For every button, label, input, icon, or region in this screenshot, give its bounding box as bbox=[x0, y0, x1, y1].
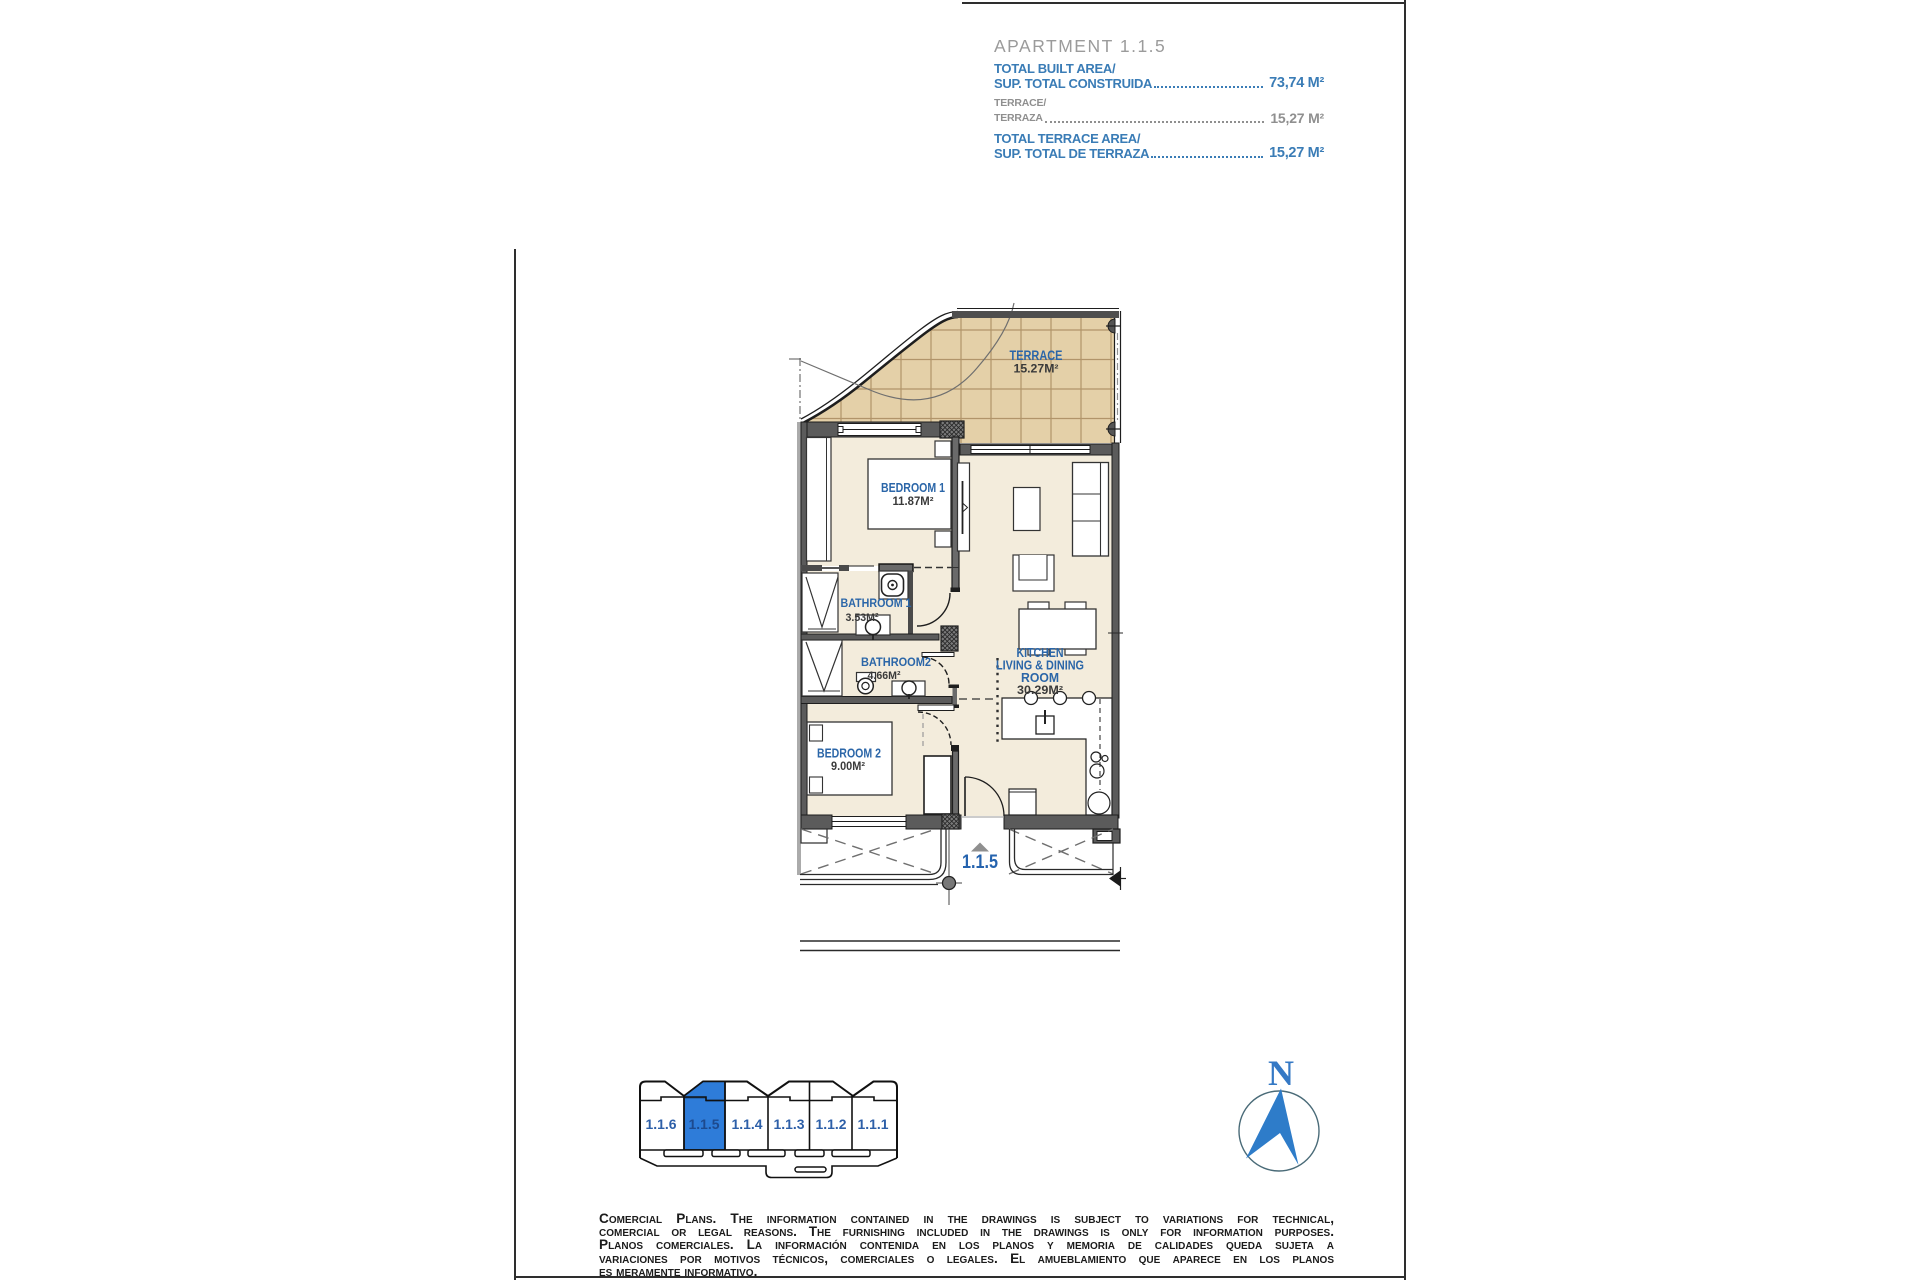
svg-text:TERRACE: TERRACE bbox=[1010, 348, 1063, 363]
svg-text:3.53M²: 3.53M² bbox=[846, 612, 879, 624]
svg-text:1.1.4: 1.1.4 bbox=[732, 1117, 764, 1132]
svg-text:1.1.5: 1.1.5 bbox=[689, 1117, 721, 1132]
svg-text:30.29M²: 30.29M² bbox=[1017, 685, 1063, 697]
svg-text:BEDROOM 1: BEDROOM 1 bbox=[881, 480, 945, 495]
svg-text:1.1.5: 1.1.5 bbox=[962, 852, 998, 873]
svg-text:1.1.2: 1.1.2 bbox=[816, 1117, 847, 1132]
svg-text:N: N bbox=[1268, 1053, 1294, 1093]
svg-text:BEDROOM 2: BEDROOM 2 bbox=[817, 746, 881, 761]
svg-text:4.66M²: 4.66M² bbox=[868, 670, 901, 682]
svg-text:ROOM: ROOM bbox=[1021, 670, 1059, 685]
svg-text:1.1.3: 1.1.3 bbox=[774, 1117, 806, 1132]
svg-text:BATHROOM 1: BATHROOM 1 bbox=[841, 596, 912, 610]
svg-text:9.00M²: 9.00M² bbox=[831, 761, 865, 773]
svg-text:BATHROOM2: BATHROOM2 bbox=[861, 655, 931, 669]
svg-text:15.27M²: 15.27M² bbox=[1014, 364, 1059, 376]
svg-text:11.87M²: 11.87M² bbox=[893, 496, 934, 508]
svg-text:1.1.1: 1.1.1 bbox=[858, 1117, 890, 1132]
svg-text:1.1.6: 1.1.6 bbox=[646, 1117, 678, 1132]
